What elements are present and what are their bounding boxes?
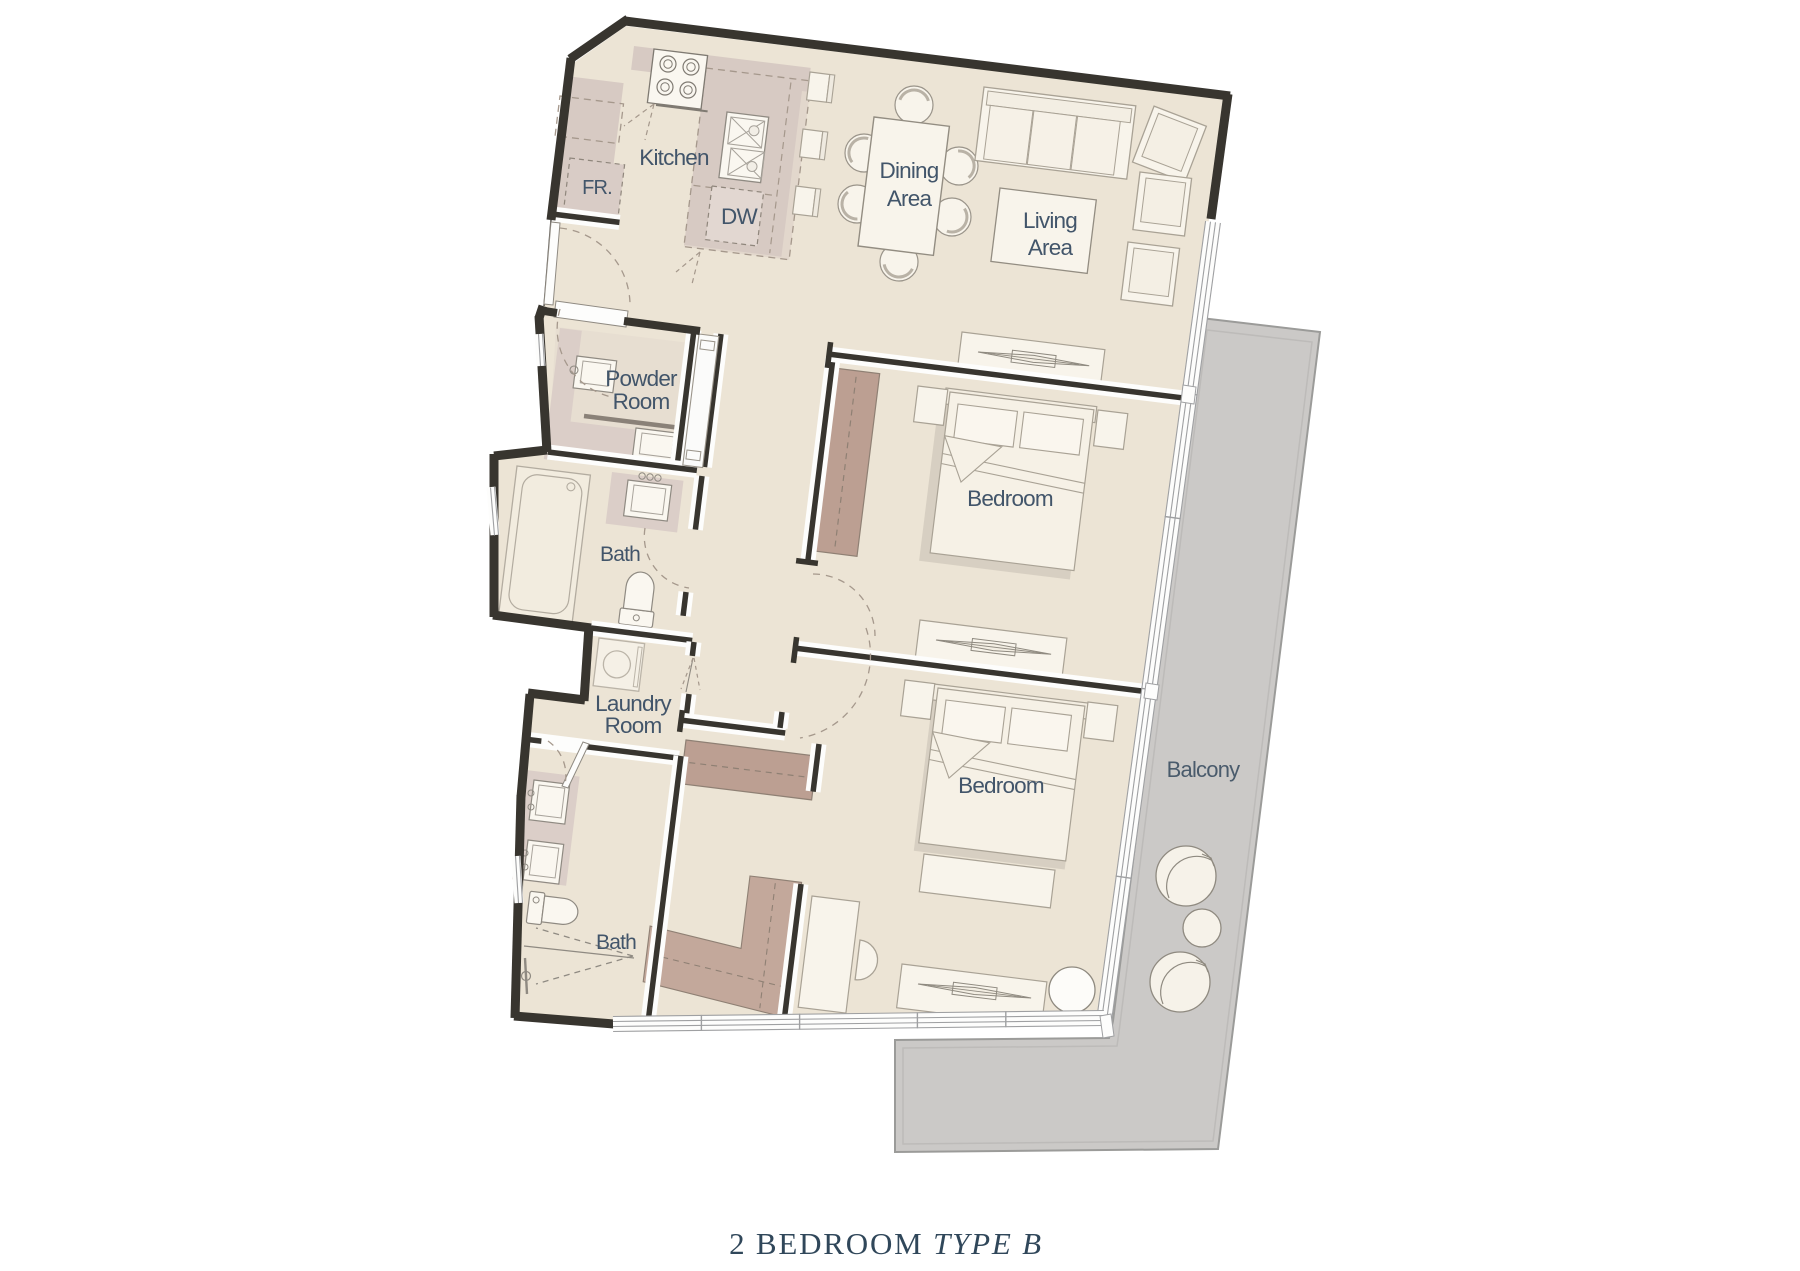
svg-text:Bath: Bath: [596, 931, 636, 954]
svg-text:Bath: Bath: [600, 543, 640, 566]
svg-text:2 BEDROOM TYPE B: 2 BEDROOM TYPE B: [729, 1226, 1043, 1261]
svg-text:Dining: Dining: [880, 158, 939, 183]
svg-text:Area: Area: [1028, 235, 1074, 260]
svg-text:Kitchen: Kitchen: [639, 145, 709, 170]
svg-text:Room: Room: [605, 713, 662, 738]
svg-text:Bedroom: Bedroom: [958, 773, 1044, 798]
svg-text:Living: Living: [1023, 208, 1077, 233]
svg-text:Powder: Powder: [605, 366, 678, 391]
svg-text:DW: DW: [721, 204, 758, 229]
svg-text:Balcony: Balcony: [1167, 757, 1240, 782]
svg-text:Area: Area: [887, 186, 933, 211]
svg-text:Bedroom: Bedroom: [967, 486, 1053, 511]
svg-text:FR.: FR.: [582, 177, 612, 199]
svg-text:Room: Room: [613, 389, 670, 414]
